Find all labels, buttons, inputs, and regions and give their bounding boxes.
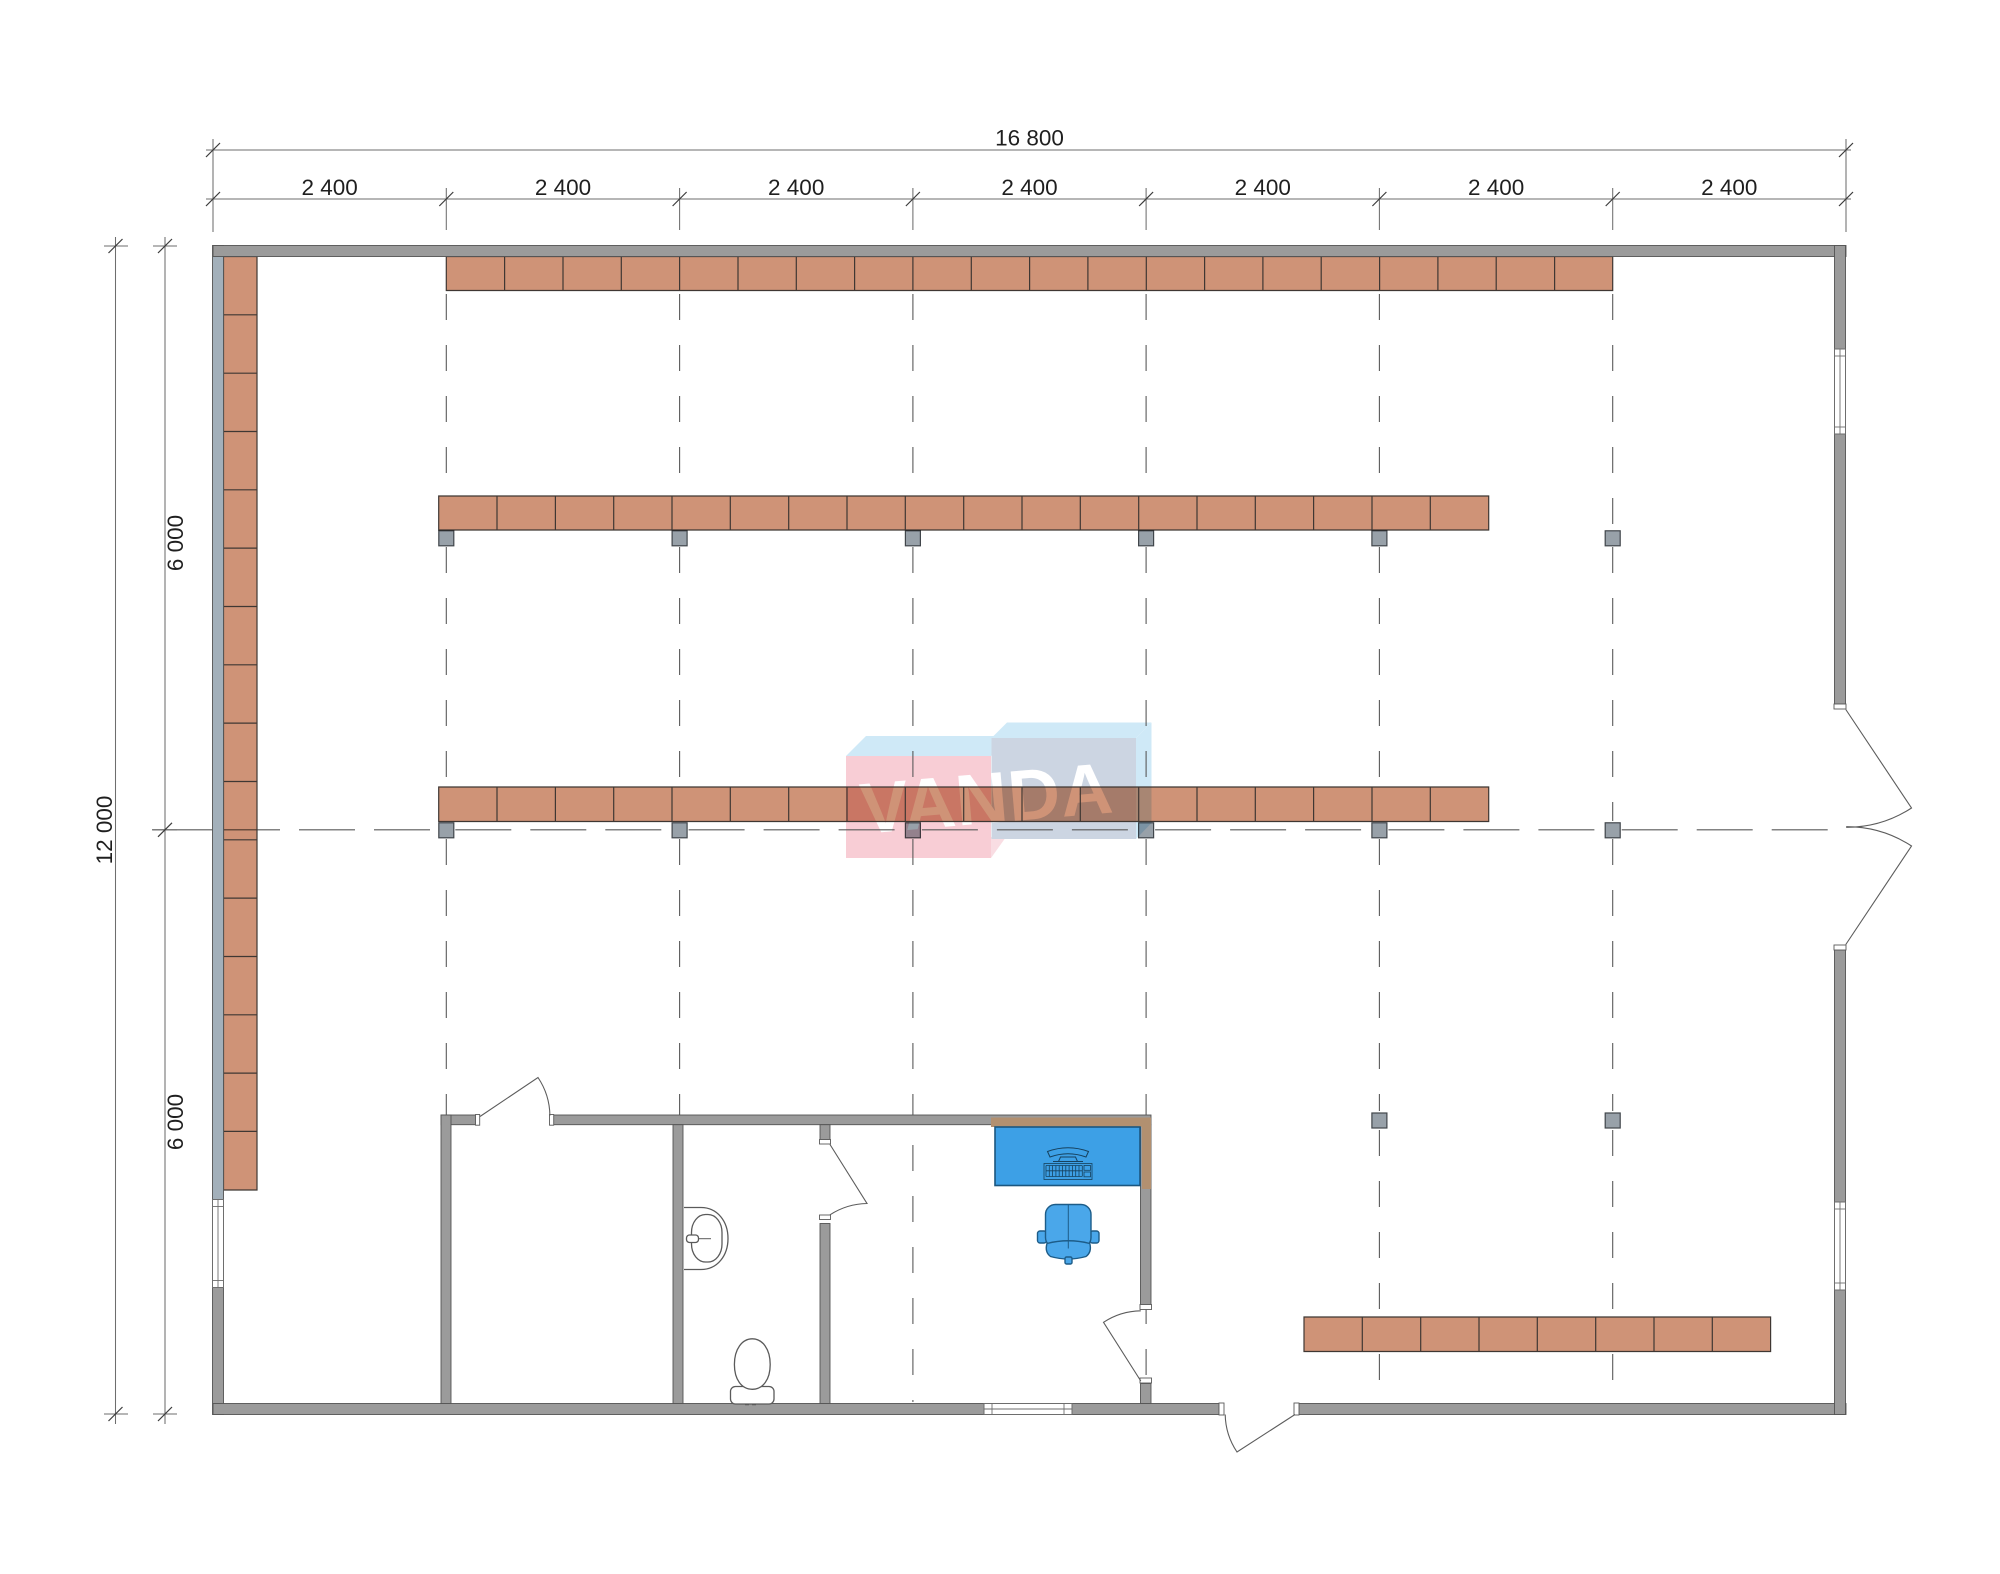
svg-text:2 400: 2 400 [1001,175,1057,200]
svg-text:6 000: 6 000 [163,1094,188,1150]
svg-text:2 400: 2 400 [1701,175,1757,200]
svg-text:2 400: 2 400 [1468,175,1524,200]
svg-text:2 400: 2 400 [768,175,824,200]
svg-text:2 400: 2 400 [1235,175,1291,200]
svg-text:12 000: 12 000 [92,796,117,865]
svg-text:16 800: 16 800 [995,126,1064,151]
svg-text:6 000: 6 000 [163,515,188,571]
svg-text:2 400: 2 400 [535,175,591,200]
svg-text:2 400: 2 400 [301,175,357,200]
